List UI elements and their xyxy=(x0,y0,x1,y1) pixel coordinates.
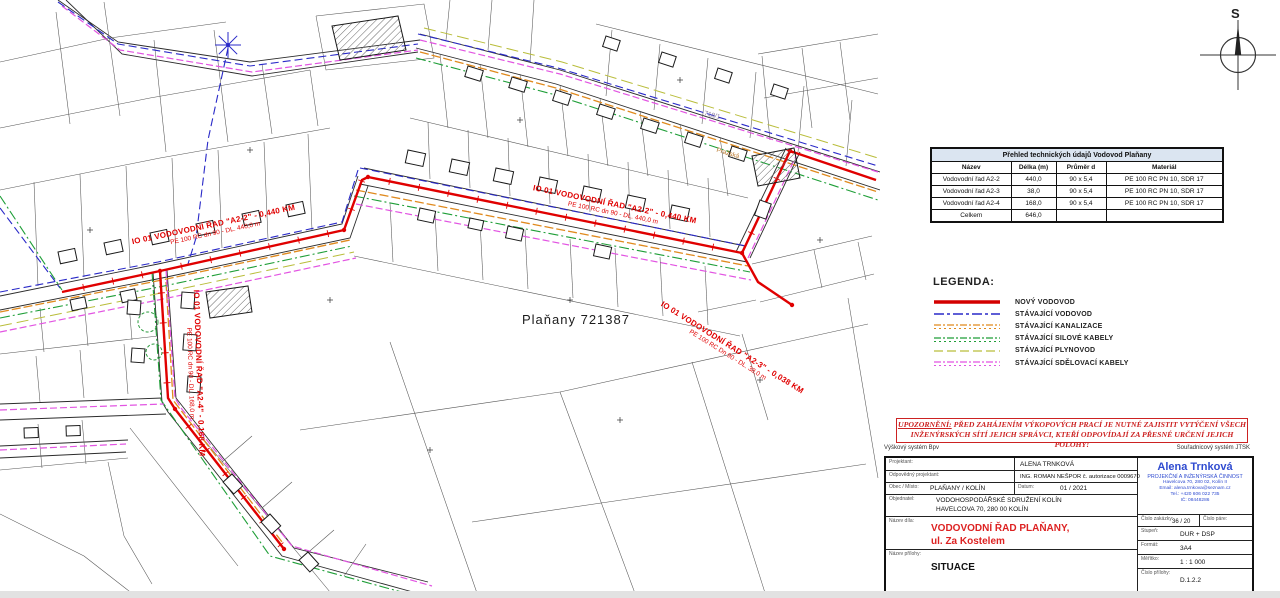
table-cell: Vodovodní řad A2-4 xyxy=(931,198,1011,210)
cell-objednatel: Objednatel: VODOHOSPODÁŘSKÉ SDRUŽENÍ KOL… xyxy=(886,495,1138,517)
table-header-cell: Název xyxy=(931,162,1011,174)
table-cell: 90 x 5,4 xyxy=(1056,186,1106,198)
legend-title: LEGENDA: xyxy=(933,276,1233,288)
legend-item: STÁVAJÍCÍ SILOVÉ KABELY xyxy=(933,333,1233,345)
table-header-cell: Materiál xyxy=(1106,162,1223,174)
cell-company: Alena Trnková PROJEKČNÍ A INŽENÝRSKÁ ČIN… xyxy=(1138,458,1252,515)
legend-item-label: STÁVAJÍCÍ SILOVÉ KABELY xyxy=(1015,335,1113,342)
table-cell: 646,0 xyxy=(1011,210,1056,223)
legend-item-label: STÁVAJÍCÍ KANALIZACE xyxy=(1015,323,1102,330)
table-cell: Vodovodní řad A2-3 xyxy=(931,186,1011,198)
legend: LEGENDA: NOVÝ VODOVODSTÁVAJÍCÍ VODOVODST… xyxy=(933,276,1233,369)
cell-odpovedny-label: Odpovědný projektant: xyxy=(886,471,1015,483)
legend-line-sample xyxy=(933,297,1001,307)
table-row: Celkem646,0 xyxy=(931,210,1223,223)
coordinate-systems-row: Výškový systém Bpv Souřadnicový systém J… xyxy=(884,445,1250,451)
map-canvas xyxy=(0,0,880,598)
position-system-label: Souřadnicový systém JTSK xyxy=(1177,445,1250,451)
table-header-cell: Délka (m) xyxy=(1011,162,1056,174)
cell-nazev-prilohy: Název přílohy: SITUACE xyxy=(886,550,1138,594)
table-cell: 90 x 5,4 xyxy=(1056,174,1106,186)
table-cell: 440,0 xyxy=(1011,174,1056,186)
table-cell: Celkem xyxy=(931,210,1011,223)
table-cell xyxy=(1106,210,1223,223)
table-cell: PE 100 RC PN 10, SDR 17 xyxy=(1106,198,1223,210)
table-cell: PE 100 RC PN 10, SDR 17 xyxy=(1106,186,1223,198)
technical-data-table: Přehled technických údajů Vodovod Plaňan… xyxy=(930,147,1222,223)
cell-nazev-dila: Název díla: VODOVODNÍ ŘAD PLAŇANY, ul. Z… xyxy=(886,517,1138,550)
legend-item-label: STÁVAJÍCÍ PLYNOVOD xyxy=(1015,347,1095,354)
cell-stupen: Stupeň: DUR + DSP xyxy=(1138,527,1252,541)
cell-datum: Datum: 01 / 2021 xyxy=(1015,483,1138,495)
warning-text-1: PŘED ZAHÁJENÍM VÝKOPOVÝCH PRACÍ JE NUTNÉ… xyxy=(954,420,1246,429)
table-cell: Vodovodní řad A2-2 xyxy=(931,174,1011,186)
cell-cislo-pare: Číslo páre: xyxy=(1200,515,1252,527)
cell-projektant-label: Projektant: xyxy=(886,458,1015,471)
warning-box: UPOZORNĚNÍ: PŘED ZAHÁJENÍM VÝKOPOVÝCH PR… xyxy=(896,418,1248,443)
cell-format: Formát: 3A4 xyxy=(1138,541,1252,555)
legend-item-label: NOVÝ VODOVOD xyxy=(1015,299,1075,306)
table-cell: 168,0 xyxy=(1011,198,1056,210)
table-cell xyxy=(1056,210,1106,223)
legend-item-label: STÁVAJÍCÍ SDĚLOVACÍ KABELY xyxy=(1015,360,1129,367)
title-block: Projektant: ALENA TRNKOVÁ Odpovědný proj… xyxy=(884,456,1254,596)
table-header-cell: Průměr d xyxy=(1056,162,1106,174)
cell-odpovedny-value: ING. ROMAN NEŠPOR č. autorizace 0009670 xyxy=(1015,471,1138,483)
table-row: Vodovodní řad A2-338,090 x 5,4PE 100 RC … xyxy=(931,186,1223,198)
situation-map: Plaňany 721387 IO 01 VODOVODNÍ ŘAD "A2-2… xyxy=(0,0,880,598)
compass-icon xyxy=(1198,18,1278,92)
table-row: Vodovodní řad A2-2440,090 x 5,4PE 100 RC… xyxy=(931,174,1223,186)
window-bottom-edge xyxy=(0,591,1280,598)
legend-item: STÁVAJÍCÍ KANALIZACE xyxy=(933,320,1233,332)
legend-line-sample xyxy=(933,321,1001,331)
legend-item: NOVÝ VODOVOD xyxy=(933,296,1233,308)
table-cell: 90 x 5,4 xyxy=(1056,198,1106,210)
table-cell: PE 100 RC PN 10, SDR 17 xyxy=(1106,174,1223,186)
cell-projektant-value: ALENA TRNKOVÁ xyxy=(1015,458,1138,471)
table-title: Přehled technických údajů Vodovod Plaňan… xyxy=(931,148,1223,162)
table-cell: 38,0 xyxy=(1011,186,1056,198)
height-system-label: Výškový systém Bpv xyxy=(884,445,939,451)
legend-item: STÁVAJÍCÍ VODOVOD xyxy=(933,308,1233,320)
legend-line-sample xyxy=(933,334,1001,344)
cell-meritko: Měřítko: 1 : 1 000 xyxy=(1138,555,1252,569)
legend-line-sample xyxy=(933,309,1001,319)
cell-obec: Obec / Místo: PLAŇANY / KOLÍN xyxy=(886,483,1015,495)
legend-item: STÁVAJÍCÍ PLYNOVOD xyxy=(933,345,1233,357)
legend-line-sample xyxy=(933,358,1001,368)
table-row: Vodovodní řad A2-4168,090 x 5,4PE 100 RC… xyxy=(931,198,1223,210)
legend-item: STÁVAJÍCÍ SDĚLOVACÍ KABELY xyxy=(933,357,1233,369)
cell-cislo-zakazky: Číslo zakázky: 36 / 20 xyxy=(1138,515,1200,527)
legend-item-label: STÁVAJÍCÍ VODOVOD xyxy=(1015,311,1092,318)
legend-line-sample xyxy=(933,346,1001,356)
warning-heading: UPOZORNĚNÍ: xyxy=(898,420,952,429)
